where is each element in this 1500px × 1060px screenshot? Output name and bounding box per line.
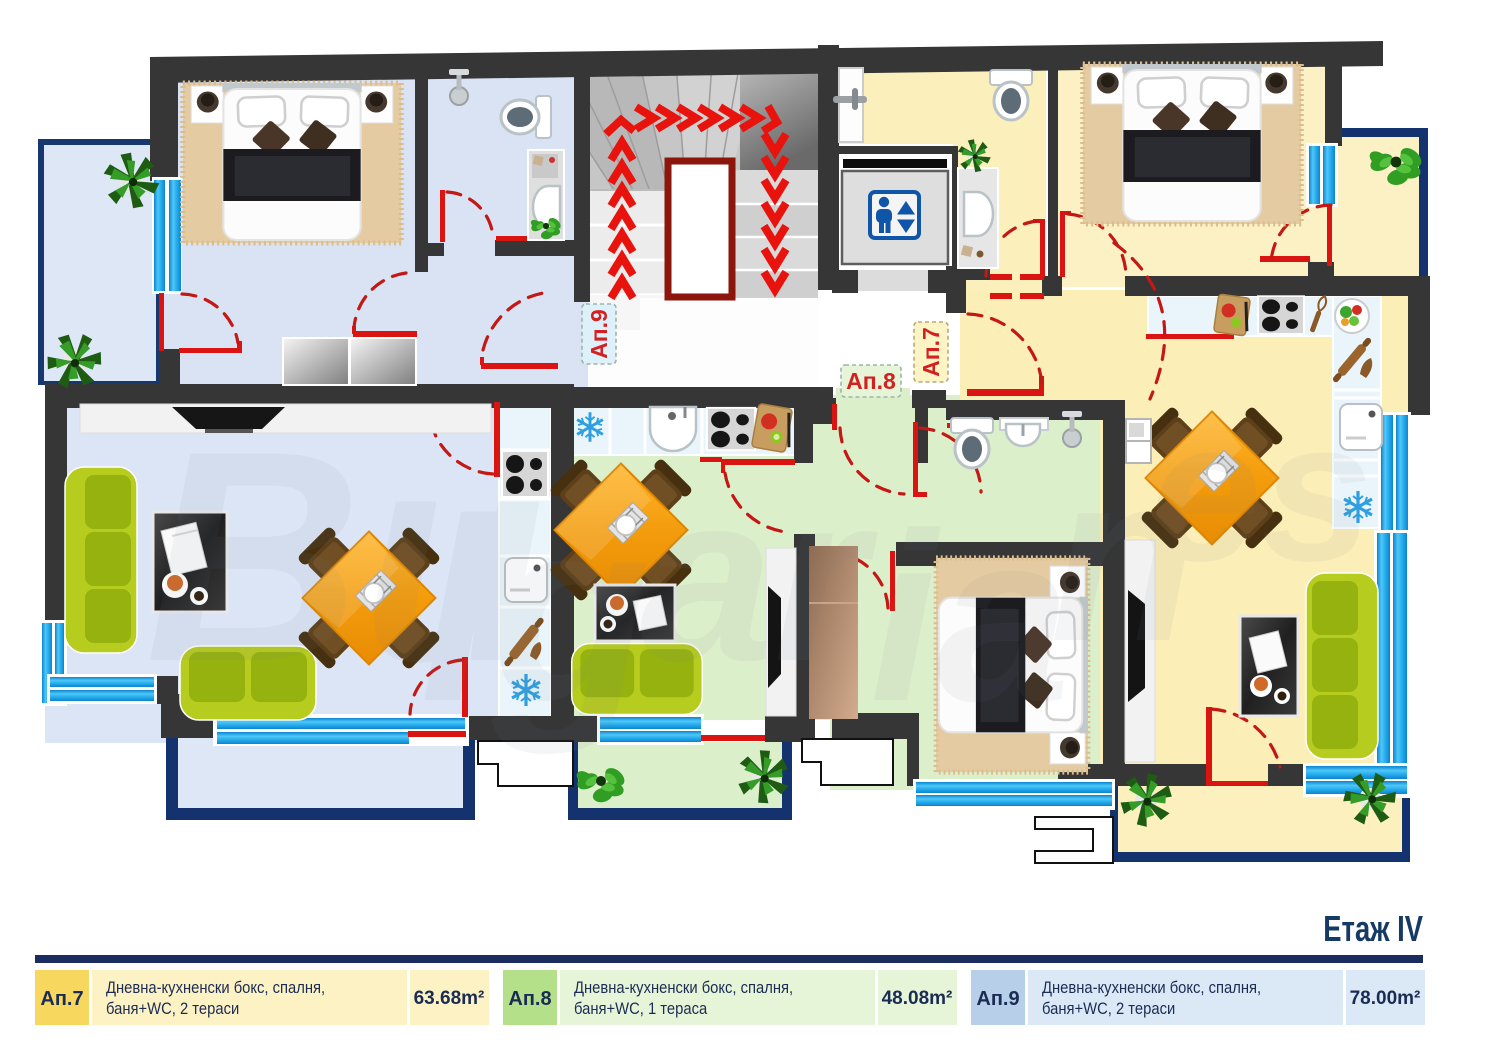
- svg-text:48.08m²: 48.08m²: [882, 988, 953, 1009]
- svg-text:Ап.7: Ап.7: [918, 327, 944, 377]
- svg-text:Ап.8: Ап.8: [846, 368, 896, 394]
- svg-text:Ап.9: Ап.9: [976, 988, 1019, 1010]
- svg-text:es: es: [1150, 380, 1372, 603]
- svg-text:ar: ar: [640, 443, 878, 711]
- svg-text:78.00m²: 78.00m²: [1350, 988, 1421, 1009]
- svg-text:Ап.8: Ап.8: [508, 988, 551, 1010]
- svg-text:Ап.9: Ап.9: [586, 309, 612, 359]
- svg-text:Дневна-кухненски бокс, спалня,: Дневна-кухненски бокс, спалня,: [1042, 979, 1261, 997]
- svg-text:ia: ia: [870, 483, 1070, 751]
- svg-text:Етаж IV: Етаж IV: [1323, 908, 1423, 949]
- svg-text:баня+WC, 2 тераси: баня+WC, 2 тераси: [106, 1000, 239, 1018]
- svg-text:lg: lg: [420, 466, 651, 757]
- svg-text:Дневна-кухненски бокс, спалня,: Дневна-кухненски бокс, спалня,: [106, 979, 325, 997]
- svg-text:63.68m²: 63.68m²: [414, 988, 485, 1009]
- svg-text:баня+WC, 2 тераси: баня+WC, 2 тераси: [1042, 1000, 1175, 1018]
- svg-text:Дневна-кухненски бокс, спалня,: Дневна-кухненски бокс, спалня,: [574, 979, 793, 997]
- svg-text:баня+WC, 1 тераса: баня+WC, 1 тераса: [574, 1000, 707, 1018]
- svg-text:Ап.7: Ап.7: [40, 988, 83, 1010]
